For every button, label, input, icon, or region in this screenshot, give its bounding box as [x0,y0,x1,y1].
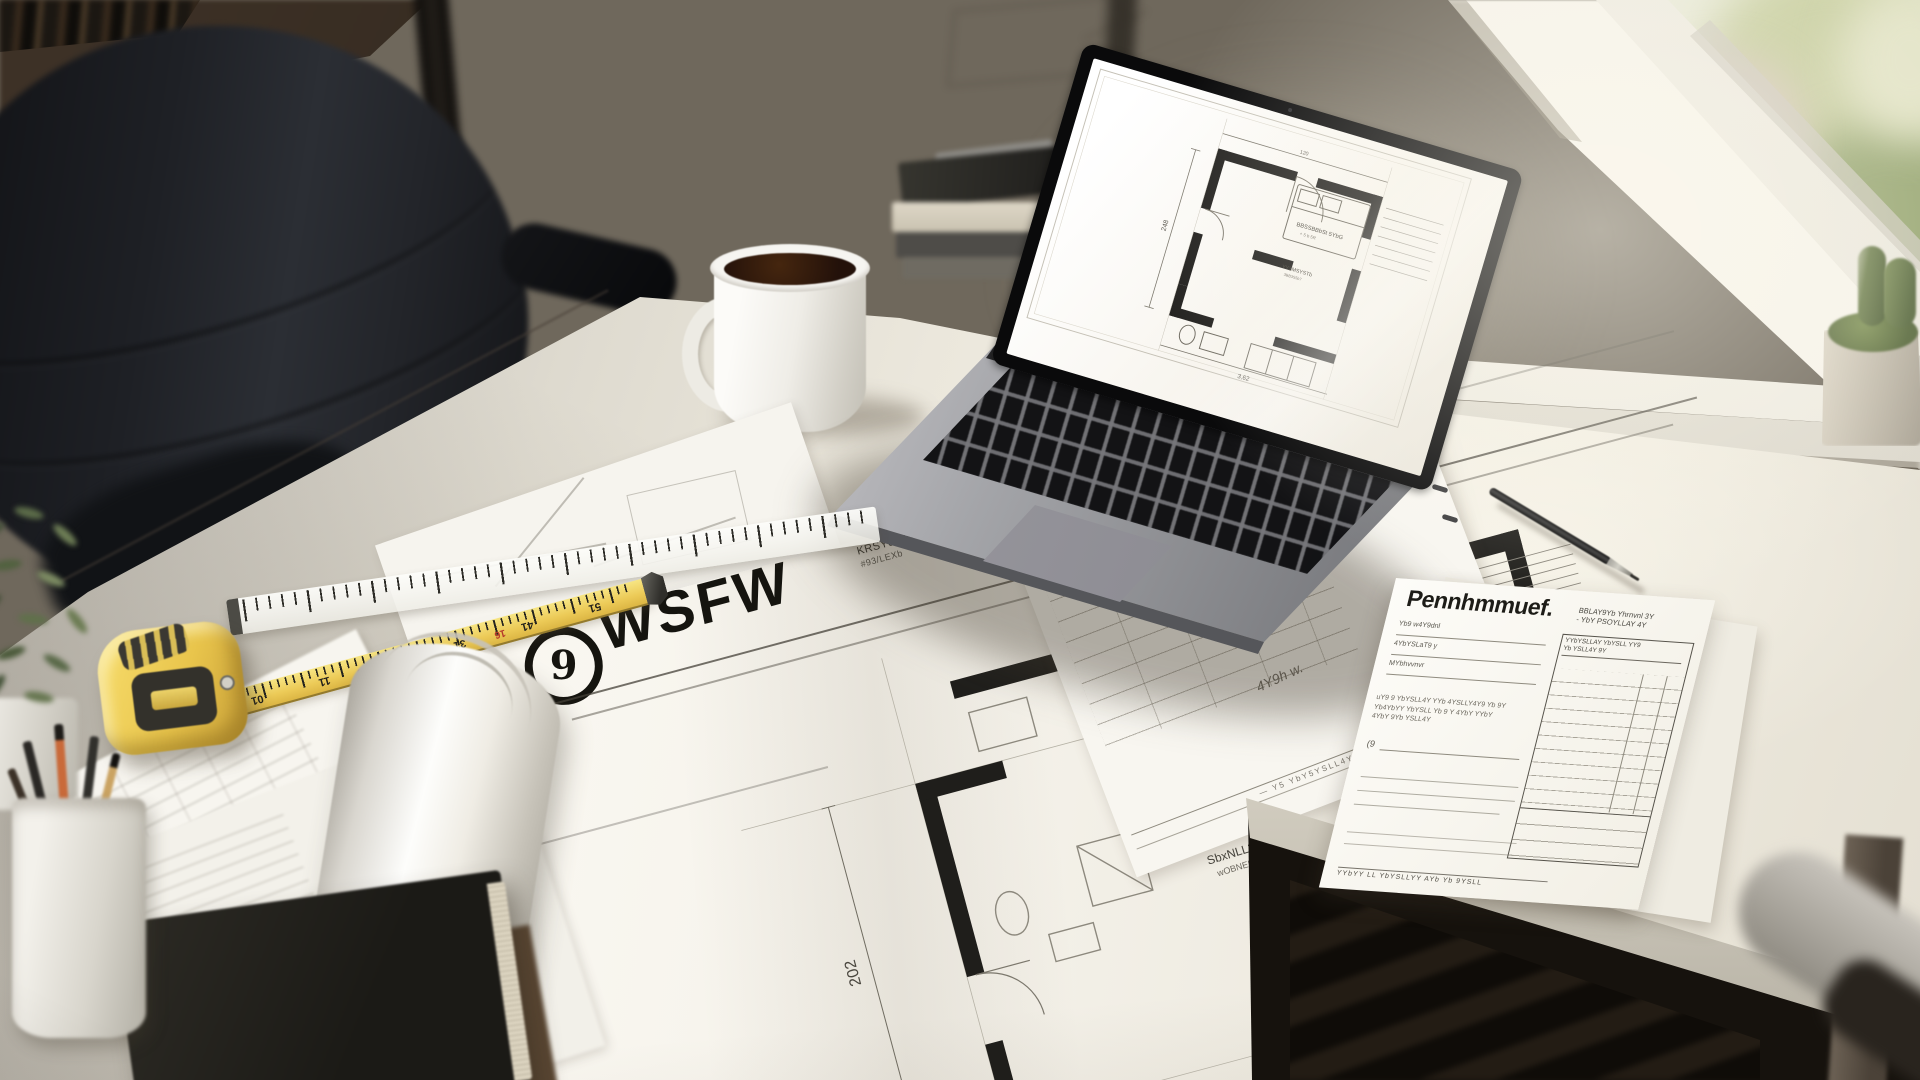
leaf [18,612,49,625]
tape-pin [219,674,236,691]
leaf [0,592,4,619]
desk-photo-scene: EKY5Y75 FSBL4A KY5 3 3 FD5 A4 4Y 9 WSFW … [0,0,1920,1080]
form-footer: YYbYY LL YbYSLLYY AYb Yb 9YSLL [1336,867,1548,892]
cactus [1858,246,1886,326]
laptop-port [1442,514,1459,523]
form-line [1344,843,1514,856]
dim-left: 202 [842,958,865,988]
form-line [1357,790,1515,802]
form-line [1354,804,1500,815]
form-header-right: BBLAY9Yb Yhrnvnl 3Y - YbY PSOYLLAY 4Y [1575,606,1703,634]
form-field-label: MYbhvvnvr [1388,660,1425,669]
leaf [35,568,66,589]
coffee [724,253,856,285]
form-table-rows [1521,668,1685,815]
form-title: Pennhmmuef. [1404,585,1557,622]
pencil-cup [12,798,146,1038]
form-field-label: Yb9 w4Y9dnl [1398,620,1441,630]
laptop-port [1432,484,1449,493]
webcam-icon [1288,108,1293,113]
leaf [64,606,90,636]
leaf [0,558,23,572]
form-field-label: 4YbYSLaT9 y [1393,640,1438,650]
logo-glyph: 9 [549,646,578,686]
form-table-header: YYbYSLLAY YbYSLL YY9 Yb YSLL4Y 9Y [1561,637,1685,664]
desk-plant [0,496,146,746]
leaf [0,644,27,663]
tape-slot [150,686,198,710]
cactus [1884,258,1916,328]
form-line [1361,776,1519,788]
form-line [1347,831,1517,844]
form-sig-label: (9 [1366,738,1376,748]
leaf [0,672,8,702]
form-field-line[interactable] [1386,674,1536,685]
form-sig-line[interactable] [1379,749,1519,760]
leaf [0,520,7,543]
form-table-footer-rows [1508,807,1650,866]
pencil-lead [1630,573,1640,581]
leaf [51,521,80,549]
form-paragraph: uY9 9 YbYSLL4Y YYb 4YSLLY4Y9 Yb 9Y Yb4Yb… [1370,693,1545,733]
leaf [23,689,54,704]
leaf [13,505,45,522]
leaf [42,651,73,675]
